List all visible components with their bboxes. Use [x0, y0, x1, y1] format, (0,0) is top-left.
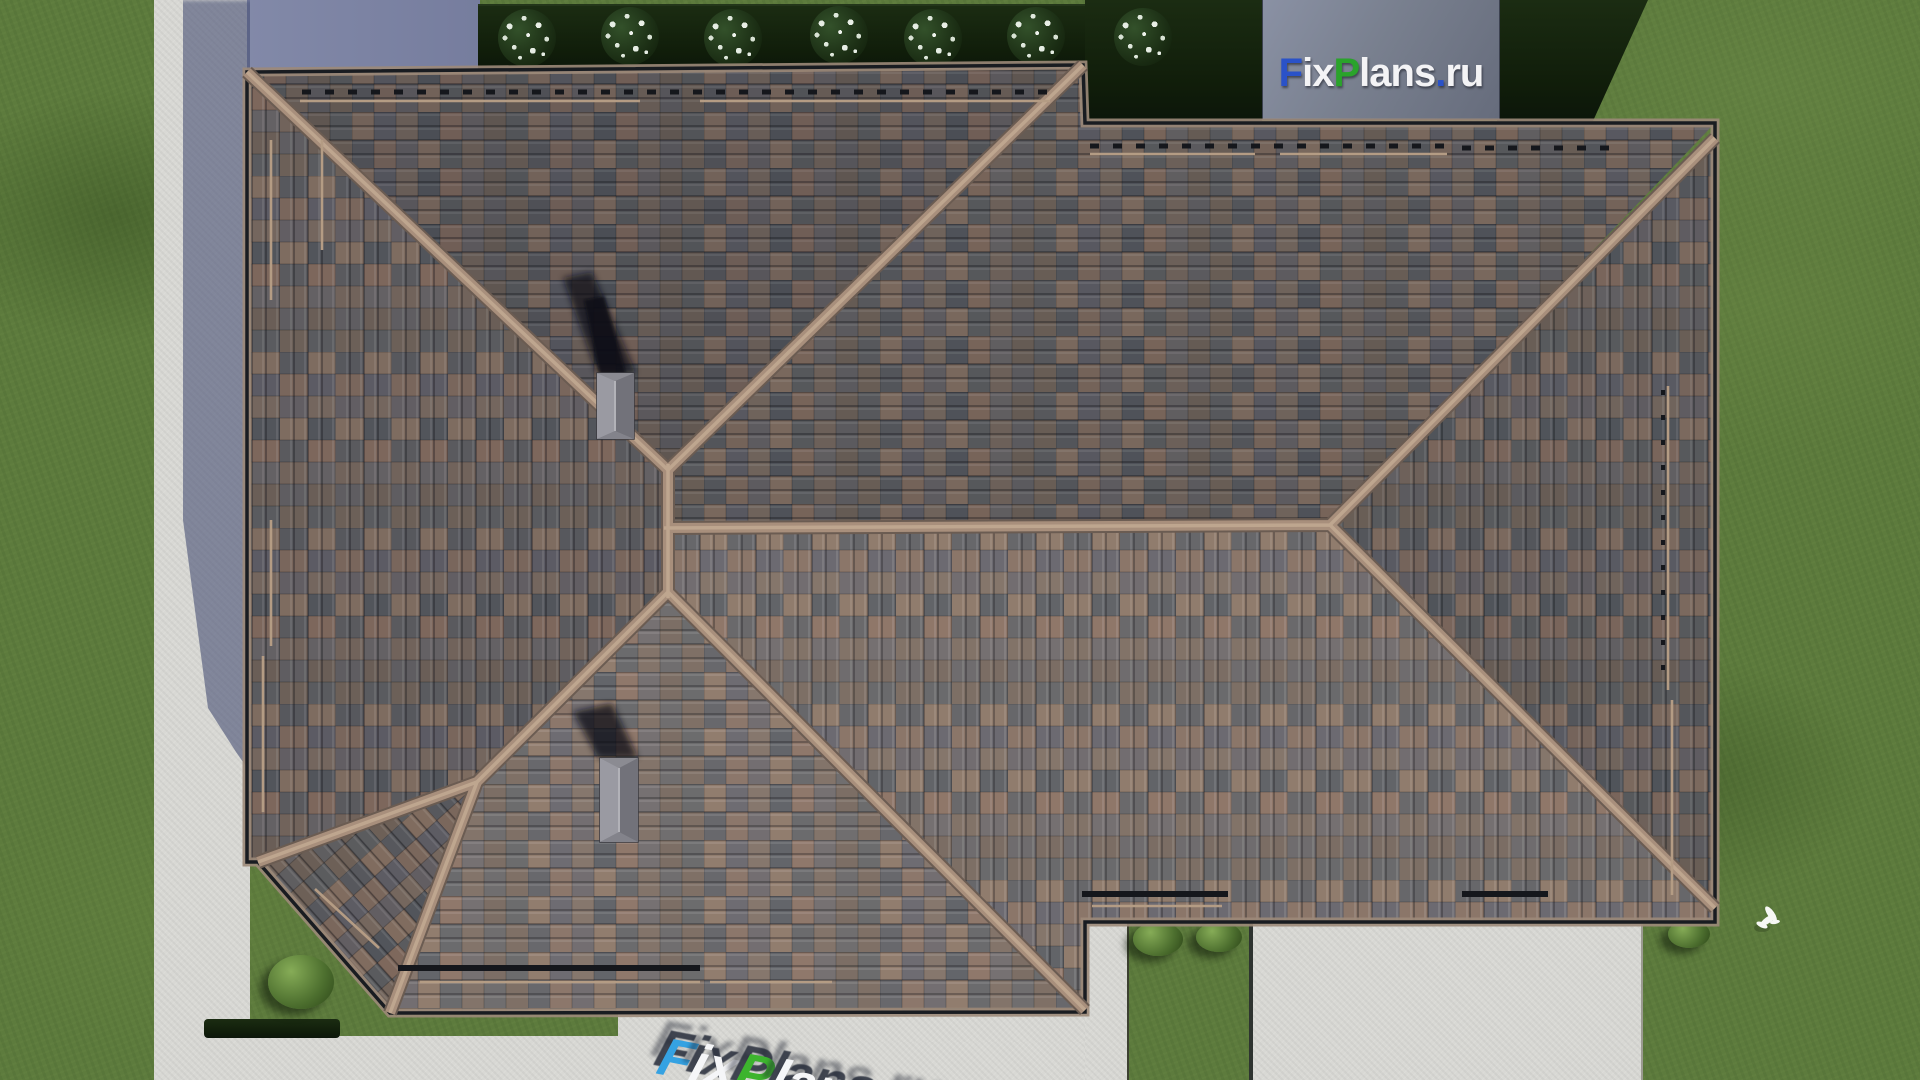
bird-icon — [1738, 892, 1798, 952]
aerial-scene: FixPlans.ru — [0, 0, 1920, 1080]
roof-planes — [247, 65, 1715, 1013]
roof-render — [0, 0, 1920, 1080]
chimney-2 — [600, 758, 638, 842]
chimney-1 — [597, 373, 634, 439]
